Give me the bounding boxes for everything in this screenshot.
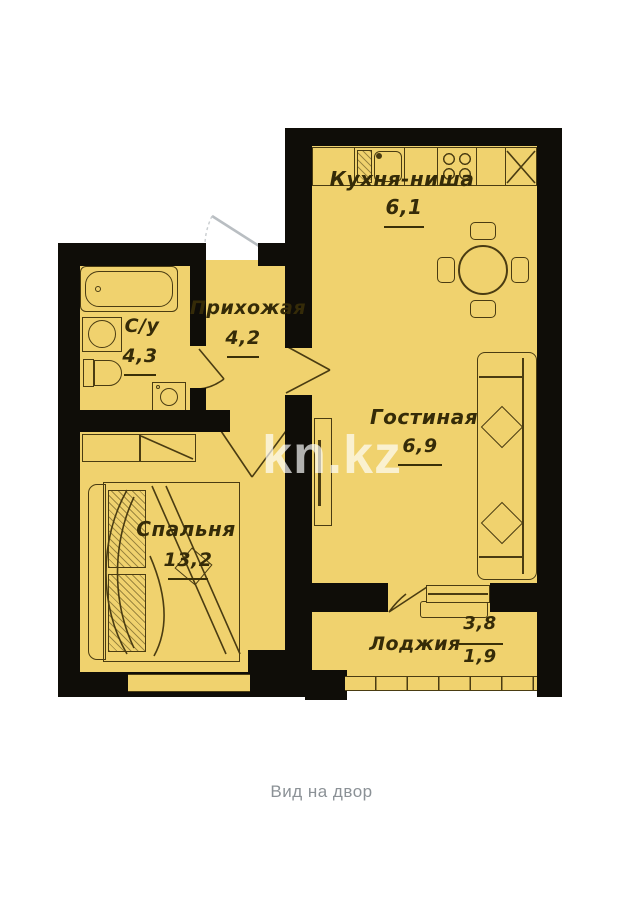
floorplan-page: Кухня-ниша 6,1 Прихожая 4,2 С/у 4,3 Гост… xyxy=(0,0,643,900)
kitchen-faucet xyxy=(376,153,382,159)
kitchen-area-underline xyxy=(384,226,424,228)
bathtub-drain xyxy=(95,286,101,292)
dining-chair-top xyxy=(470,222,496,240)
wall-top-entrance-stub xyxy=(258,243,291,266)
bathroom-area: 4,3 xyxy=(90,346,190,367)
wall-loggia-end-block xyxy=(305,670,347,700)
kn-kz-watermark: kn.kz xyxy=(227,424,437,486)
loggia-fraction-line xyxy=(459,643,503,645)
washing-machine-drum xyxy=(160,388,178,406)
hallway-living-passage xyxy=(283,346,314,397)
bathroom-area-underline xyxy=(124,374,156,376)
sofa-armrest-bottom-line xyxy=(479,556,523,558)
balcony-window-glass-line xyxy=(428,593,488,595)
bedroom-label: Спальня xyxy=(86,518,286,540)
wall-top-kitchen xyxy=(287,128,562,146)
wardrobe-divider xyxy=(139,435,141,461)
dining-chair-right xyxy=(511,257,529,283)
kitchen-label: Кухня-ниша xyxy=(302,168,502,190)
bedroom-area: 13,2 xyxy=(138,550,238,571)
bedroom-window xyxy=(128,674,250,692)
hallway-area-underline xyxy=(227,356,259,358)
wall-bath-bedroom xyxy=(58,410,230,432)
entrance-door-arc xyxy=(205,216,212,245)
wall-living-loggia-left xyxy=(285,583,388,612)
dining-chair-bottom xyxy=(470,300,496,318)
loggia-area-reduced: 1,9 xyxy=(430,647,530,667)
dining-chair-left xyxy=(437,257,455,283)
bed-pillow-bottom xyxy=(108,574,146,652)
wall-top-left-section xyxy=(58,243,206,266)
loggia-area-total: 3,8 xyxy=(430,614,530,634)
wall-loggia-left-flange xyxy=(248,650,312,697)
wall-right-outer xyxy=(537,128,562,697)
corner-cabinet xyxy=(505,147,537,186)
bedroom-area-underline xyxy=(168,578,208,580)
washing-machine-knob xyxy=(156,385,160,389)
sofa-back-line xyxy=(522,358,524,574)
wall-left-outer xyxy=(58,243,80,697)
view-caption: Вид на двор xyxy=(0,782,643,802)
wall-living-loggia-right xyxy=(490,583,537,612)
hallway-area: 4,2 xyxy=(193,328,293,349)
loggia-glazing xyxy=(345,676,537,691)
entrance-door-leaf xyxy=(212,216,259,246)
sofa xyxy=(477,352,537,580)
sofa-armrest-top-line xyxy=(479,376,523,378)
dining-table xyxy=(458,245,508,295)
kitchen-area: 6,1 xyxy=(354,196,454,218)
bathroom-label: С/у xyxy=(92,316,192,337)
hallway-label: Прихожая xyxy=(168,298,328,319)
